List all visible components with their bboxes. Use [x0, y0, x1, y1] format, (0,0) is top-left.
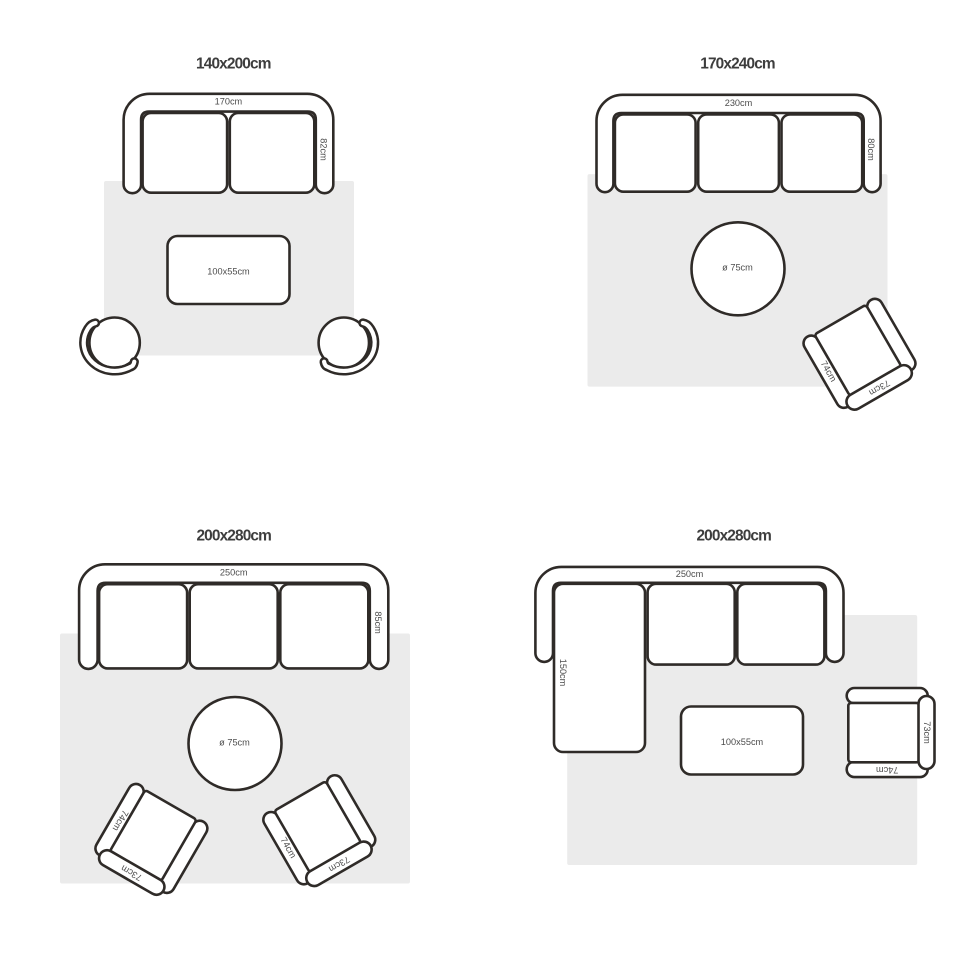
svg-text:73cm: 73cm: [922, 721, 932, 744]
svg-text:ø 75cm: ø 75cm: [722, 263, 753, 273]
svg-text:200x280cm: 200x280cm: [196, 528, 271, 545]
svg-text:230cm: 230cm: [725, 98, 753, 108]
svg-text:100x55cm: 100x55cm: [721, 737, 764, 747]
svg-text:80cm: 80cm: [866, 138, 876, 161]
svg-text:82cm: 82cm: [318, 138, 328, 161]
svg-text:100x55cm: 100x55cm: [207, 266, 250, 276]
svg-text:ø 75cm: ø 75cm: [219, 737, 250, 747]
svg-text:200x280cm: 200x280cm: [696, 528, 771, 545]
svg-text:250cm: 250cm: [676, 569, 704, 579]
svg-text:250cm: 250cm: [220, 568, 248, 578]
svg-text:170cm: 170cm: [215, 97, 243, 107]
svg-text:170x240cm: 170x240cm: [700, 56, 775, 73]
svg-text:150cm: 150cm: [558, 659, 568, 687]
svg-text:85cm: 85cm: [373, 611, 383, 634]
svg-text:74cm: 74cm: [876, 765, 899, 775]
svg-text:140x200cm: 140x200cm: [196, 56, 271, 73]
